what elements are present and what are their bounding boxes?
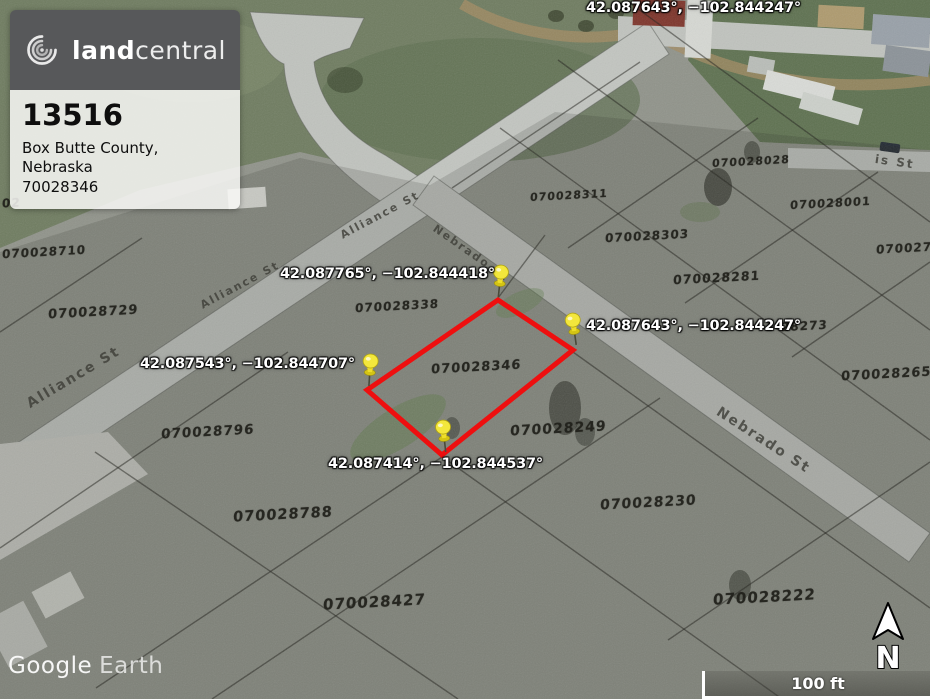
map-pin-icon [559,310,589,347]
parcel-number-label: 070028001 [790,194,872,212]
google-earth-watermark: GoogleEarth [8,653,163,679]
parcel-number-label: 070028311 [530,187,608,204]
parcel-number-label: 070028346 [431,358,522,378]
map-canvas: 02 070028710 070028729 070028311 0700280… [0,0,930,699]
listing-location: Box Butte County, Nebraska [22,139,228,178]
parcel-number-label: 070028788 [233,504,334,525]
brand-central: central [135,36,226,65]
parcel-number-label: 070028249 [510,418,607,439]
map-pin-icon [429,418,458,455]
map-pin-icon [356,352,384,388]
street-name-label: Alliance St [338,189,422,242]
street-name-label: is St [874,152,915,171]
parcel-number-label: 070028710 [2,243,87,261]
listing-id: 13516 [22,100,228,132]
parcel-number-label: 070028028 [712,153,790,170]
pin-coordinate-label: 42.087765°, −102.844418° [280,266,495,282]
parcel-number-label: 070028222 [713,585,817,608]
pin-coordinate-label: 42.087643°, −102.844247° [586,318,801,334]
listing-card-header: landcentral [10,10,240,90]
parcel-number-label: 0700279 [876,239,930,256]
brand-wordmark: landcentral [72,36,226,65]
parcel-number-label: 070028230 [600,492,697,513]
street-name-label: Alliance St [198,259,282,312]
street-name-label: Alliance St [24,343,123,411]
parcel-number-label: 070028796 [161,422,255,443]
street-name-label: Nebrado St [713,404,813,477]
parcel-number-label: 070028427 [323,590,427,613]
parcel-number-label: 070028281 [673,268,761,288]
pin-coordinate-label: 42.087643°, −102.844247° [586,0,801,16]
brand-land: land [72,36,135,65]
parcel-number-label: 070028303 [605,227,690,245]
pin-coordinate-label: 42.087543°, −102.844707° [140,356,355,372]
scale-bar-label: 100 ft [791,674,845,693]
parcel-number-label: 070028338 [355,297,440,315]
north-label: N [875,641,900,672]
pin-coordinate-label: 42.087414°, −102.844537° [328,456,543,472]
scale-bar: 100 ft [702,671,930,699]
parcel-number-label: 070028729 [48,303,139,323]
north-arrow-icon: N [866,602,910,672]
landcentral-logo-icon [24,27,60,73]
parcel-number-label: 070028265 [841,365,930,385]
listing-card: landcentral 13516 Box Butte County, Nebr… [10,10,240,209]
watermark-google: Google [8,653,92,679]
listing-parcel-number: 70028346 [22,178,228,198]
listing-card-body: 13516 Box Butte County, Nebraska 7002834… [10,90,240,209]
watermark-earth: Earth [99,653,163,679]
